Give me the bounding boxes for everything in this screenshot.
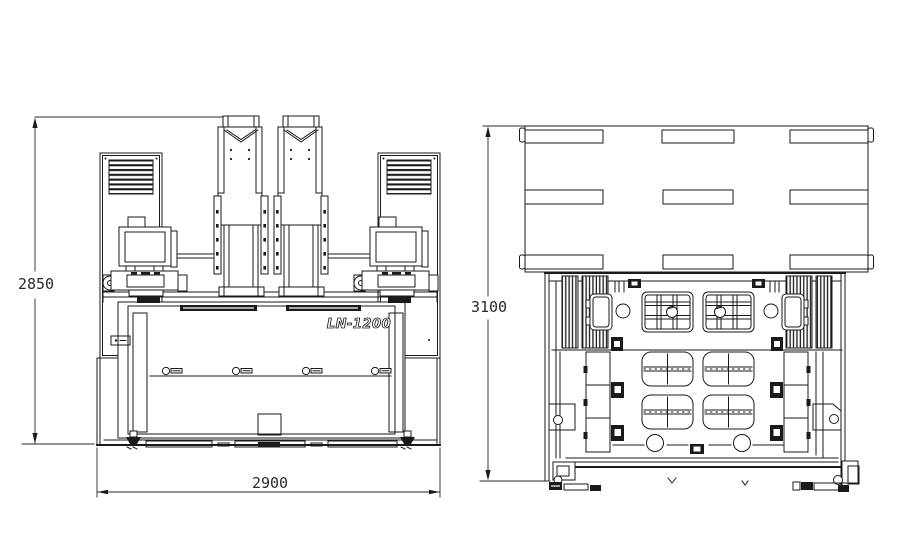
height-dim-label: 2850 — [18, 275, 54, 293]
arrow-down-icon — [32, 433, 37, 444]
height-dim-label: 3100 — [471, 298, 507, 316]
lower-pallet — [703, 352, 754, 386]
base-and-feet — [549, 458, 859, 492]
left-z-column — [214, 116, 268, 296]
upper-pallet-right — [703, 292, 754, 332]
arrow-up-icon — [485, 127, 490, 138]
arrow-right-icon — [429, 490, 440, 495]
upper-pallet-left — [642, 292, 693, 332]
arrow-left-icon — [98, 490, 109, 495]
pallet-clamp-left — [586, 294, 612, 330]
pallet-clamp-right — [782, 294, 808, 330]
louver-vent — [109, 160, 153, 194]
width-dim-label: 2900 — [252, 474, 288, 492]
arrow-down-icon — [485, 470, 490, 481]
louver-vent — [387, 160, 431, 194]
tool-rack-left — [584, 352, 611, 452]
side-view: 3100 — [471, 126, 874, 492]
front-width-dimension: 2900 — [97, 448, 440, 497]
front-view: LN-1200 — [18, 116, 440, 497]
lower-enclosure: LN-1200 — [111, 302, 430, 438]
pallet-stocker-top — [520, 126, 874, 272]
lower-pallet — [642, 395, 693, 429]
lower-pallet — [703, 395, 754, 429]
hinge-bracket-left — [549, 404, 575, 430]
machine-side-body — [545, 273, 859, 492]
guide-rail-hatch — [816, 276, 832, 348]
machine-dimension-drawing: LN-1200 — [0, 0, 900, 550]
lower-pallet — [642, 352, 693, 386]
guide-rail-hatch — [562, 276, 578, 348]
model-name-label: LN-1200 — [327, 317, 391, 332]
arrow-up-icon — [32, 118, 37, 129]
right-z-column — [274, 116, 328, 296]
hinge-bracket-right — [813, 404, 841, 430]
drawing-canvas: LN-1200 — [0, 0, 900, 550]
tool-rack-right — [784, 352, 811, 452]
